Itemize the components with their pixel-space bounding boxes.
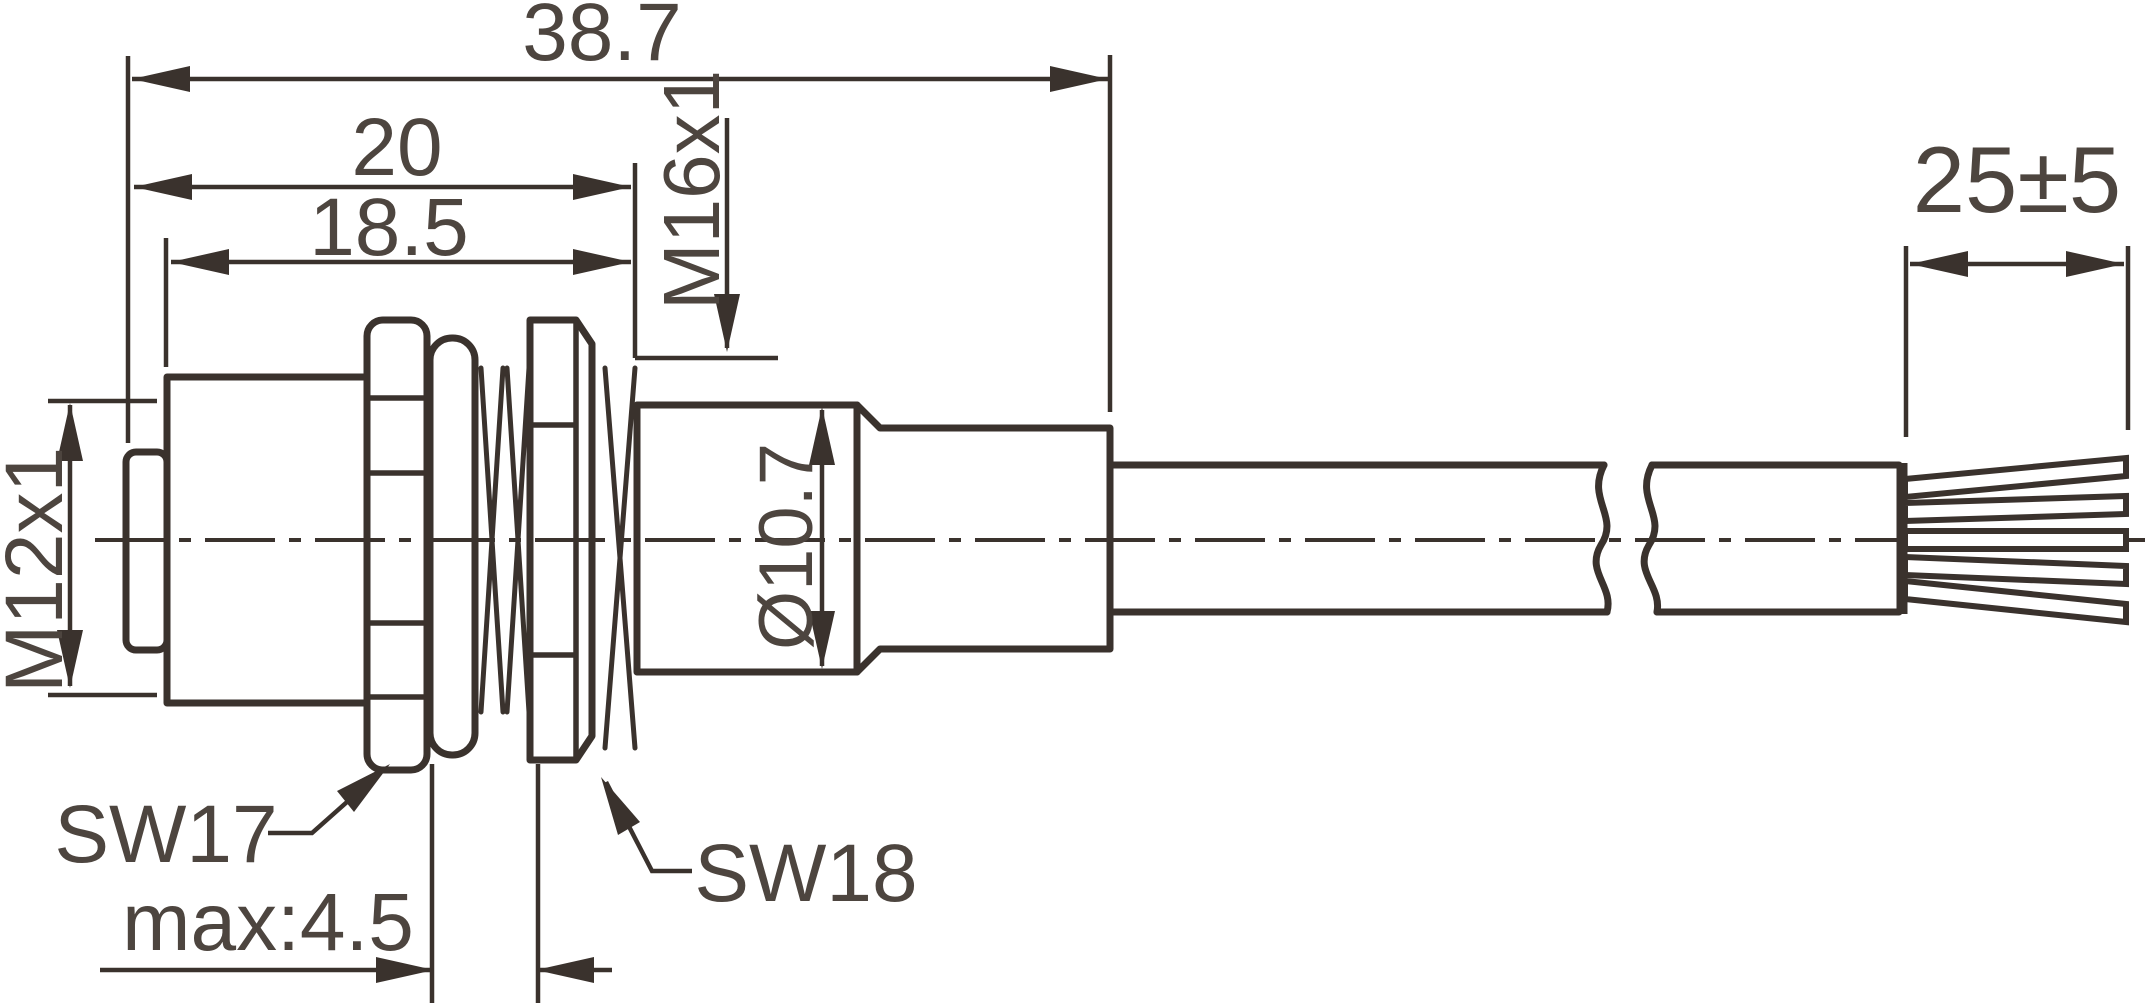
- label-rear-diameter: Ø10.7: [744, 443, 829, 650]
- wire-2: [1905, 496, 2126, 521]
- arrowhead-strip-right: [2066, 251, 2124, 277]
- drawing-canvas: 38.7 20 18.5 M16x1 25±5 M12x1 Ø10.7 SW17…: [0, 0, 2147, 1005]
- arrowhead-sw18: [601, 777, 640, 835]
- arrowhead-38-7-right: [1050, 66, 1108, 92]
- label-rear-thread: M16x1: [647, 70, 736, 310]
- label-overall-length: 38.7: [522, 0, 682, 78]
- thread-right-hatch: [605, 368, 635, 748]
- wire-3: [1905, 531, 2126, 549]
- label-body-length: 18.5: [309, 182, 469, 273]
- label-upper-length: 20: [351, 102, 442, 193]
- arrowhead-18-5-left: [171, 249, 229, 275]
- wire-1: [1905, 458, 2126, 497]
- label-strip-length: 25±5: [1913, 127, 2121, 232]
- arrowhead-strip-left: [1910, 251, 1968, 277]
- connector-body-group: [126, 320, 1110, 770]
- cable-break-left: [1596, 465, 1608, 612]
- arrowhead-20-right: [573, 174, 631, 200]
- arrowhead-max-right: [536, 957, 594, 983]
- washer-shape: [430, 338, 475, 755]
- label-front-thread: M12x1: [0, 447, 80, 693]
- wire-5: [1905, 581, 2126, 622]
- front-ring-shape: [126, 452, 167, 650]
- label-panel-thickness: max:4.5: [122, 877, 414, 968]
- label-wrench-front: SW17: [54, 789, 277, 880]
- label-wrench-rear: SW18: [694, 828, 917, 919]
- connector-technical-drawing: 38.7 20 18.5 M16x1 25±5 M12x1 Ø10.7 SW17…: [0, 0, 2147, 1005]
- wire-4: [1905, 557, 2126, 584]
- arrowhead-18-5-right: [573, 249, 631, 275]
- arrowhead-38-7-left: [132, 66, 190, 92]
- sw17-nut-shape: [367, 320, 427, 770]
- arrowhead-20-left: [134, 174, 192, 200]
